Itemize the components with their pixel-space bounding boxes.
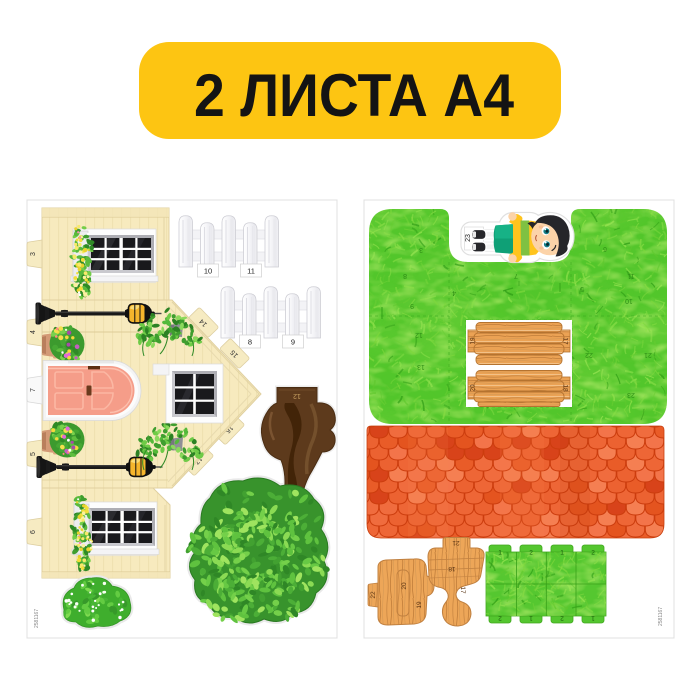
svg-text:2 ЛИСТА А4: 2 ЛИСТА А4	[194, 62, 515, 129]
svg-text:8: 8	[403, 272, 407, 279]
svg-text:23: 23	[627, 391, 635, 398]
svg-text:11: 11	[627, 272, 634, 279]
svg-text:12: 12	[415, 331, 423, 338]
svg-text:6: 6	[603, 245, 607, 252]
svg-text:2581167: 2581167	[658, 607, 664, 626]
svg-text:21: 21	[452, 539, 460, 546]
svg-text:5: 5	[580, 285, 584, 292]
svg-text:17: 17	[459, 586, 466, 594]
svg-text:19: 19	[416, 601, 423, 609]
svg-text:19: 19	[470, 337, 477, 345]
svg-text:7: 7	[30, 388, 37, 392]
svg-text:22: 22	[370, 591, 377, 599]
svg-text:18: 18	[448, 565, 456, 572]
svg-text:4: 4	[452, 289, 456, 296]
svg-text:9: 9	[291, 338, 295, 347]
svg-text:1: 1	[529, 615, 533, 622]
svg-text:2581167: 2581167	[34, 609, 40, 628]
svg-text:6: 6	[30, 530, 37, 534]
svg-text:11: 11	[247, 267, 255, 276]
svg-text:2: 2	[498, 615, 502, 622]
svg-text:21: 21	[644, 351, 652, 358]
svg-text:9: 9	[410, 302, 414, 309]
svg-text:10: 10	[625, 297, 633, 304]
svg-text:17: 17	[562, 337, 569, 345]
svg-text:2: 2	[529, 550, 533, 557]
svg-text:1: 1	[591, 615, 595, 622]
svg-text:20: 20	[401, 582, 408, 590]
svg-text:8: 8	[248, 338, 252, 347]
svg-text:1: 1	[498, 550, 502, 557]
svg-text:20: 20	[470, 384, 477, 392]
svg-text:22: 22	[585, 351, 593, 358]
svg-text:7: 7	[514, 272, 518, 279]
svg-text:3: 3	[30, 252, 37, 256]
svg-text:18: 18	[562, 384, 569, 392]
svg-text:2: 2	[560, 615, 564, 622]
svg-text:1: 1	[560, 550, 564, 557]
svg-text:13: 13	[417, 363, 425, 370]
svg-text:4: 4	[30, 330, 37, 334]
svg-text:12: 12	[293, 392, 301, 399]
svg-text:10: 10	[204, 267, 212, 276]
svg-text:3: 3	[419, 246, 423, 253]
svg-text:2: 2	[591, 550, 595, 557]
svg-text:5: 5	[30, 452, 37, 456]
